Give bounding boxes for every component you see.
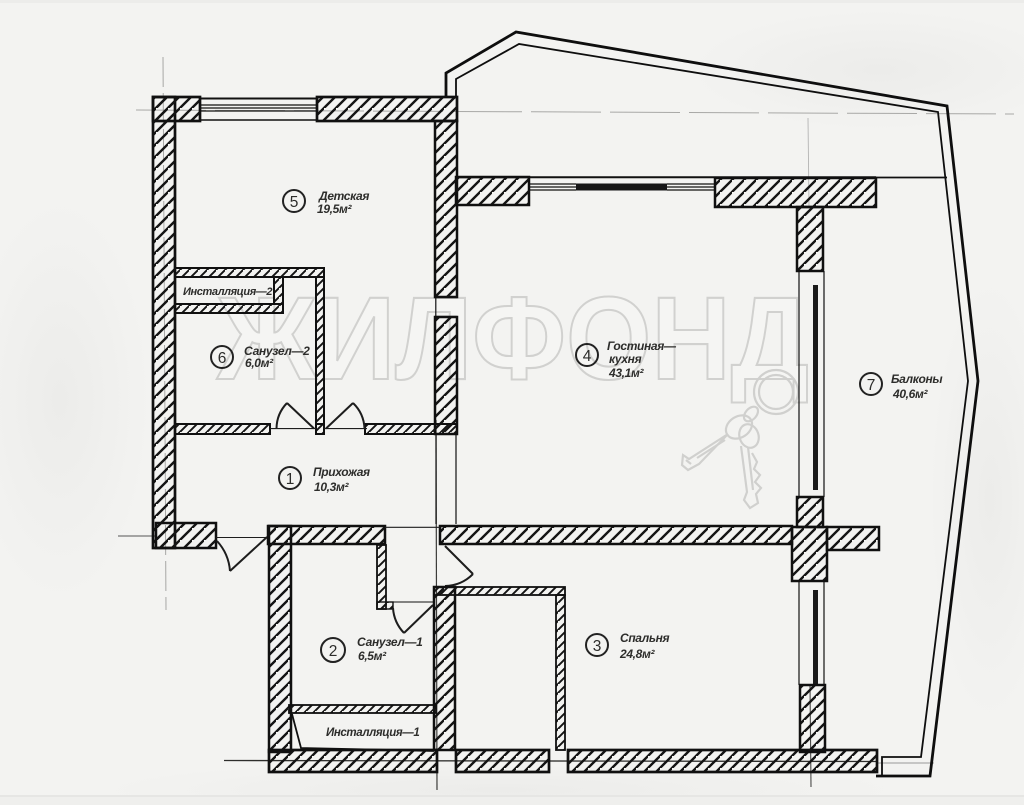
- svg-text:7: 7: [867, 377, 876, 394]
- svg-text:24,8м²: 24,8м²: [619, 647, 655, 661]
- svg-text:2: 2: [329, 643, 338, 660]
- svg-text:кухня: кухня: [609, 352, 642, 366]
- svg-text:Спальня: Спальня: [620, 631, 670, 645]
- svg-text:Гостиная—: Гостиная—: [607, 339, 677, 353]
- svg-text:10,3м²: 10,3м²: [314, 480, 349, 494]
- svg-text:ЖИЛФОНД: ЖИЛФОНД: [216, 273, 809, 405]
- svg-text:6: 6: [218, 350, 227, 367]
- svg-text:Инсталляция—2: Инсталляция—2: [183, 286, 272, 298]
- svg-text:Прихожая: Прихожая: [313, 465, 370, 479]
- svg-text:Балконы: Балконы: [891, 372, 943, 386]
- svg-text:6,5м²: 6,5м²: [358, 649, 387, 663]
- svg-text:3: 3: [593, 638, 602, 655]
- svg-text:Санузел—1: Санузел—1: [357, 635, 423, 649]
- svg-text:Детская: Детская: [318, 189, 369, 203]
- svg-text:40,6м²: 40,6м²: [892, 387, 928, 401]
- svg-text:1: 1: [286, 471, 295, 488]
- svg-text:Инсталляция—1: Инсталляция—1: [326, 727, 419, 739]
- svg-text:4: 4: [583, 348, 592, 365]
- svg-text:19,5м²: 19,5м²: [317, 202, 352, 216]
- svg-text:5: 5: [290, 194, 299, 211]
- svg-text:6,0м²: 6,0м²: [245, 356, 274, 370]
- svg-text:43,1м²: 43,1м²: [608, 366, 644, 380]
